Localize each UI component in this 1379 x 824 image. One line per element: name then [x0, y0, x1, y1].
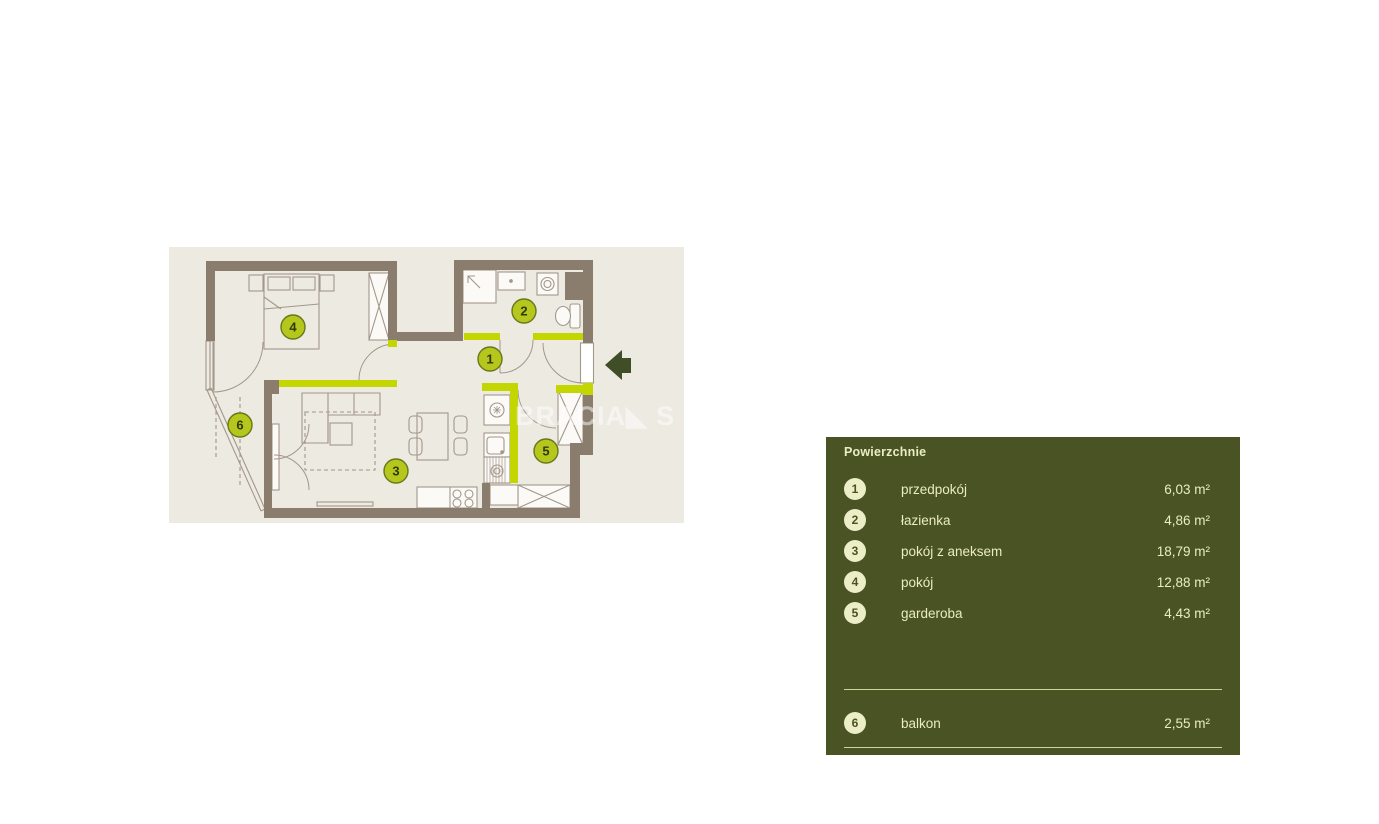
legend-room-number: 3 — [844, 540, 866, 562]
legend-room-label: pokój — [901, 575, 933, 590]
room-marker-1: 1 — [478, 347, 502, 371]
watermark: BRACIA◣ S — [515, 401, 675, 431]
legend-room-area: 18,79 m² — [1157, 544, 1210, 559]
shower — [463, 270, 496, 303]
legend-room-area: 2,55 m² — [1164, 716, 1210, 731]
legend-row-przedpokoj: 1 przedpokój 6,03 m² — [844, 477, 1210, 501]
legend-row-lazienka: 2 łazienka 4,86 m² — [844, 508, 1210, 532]
legend-row-pokoj: 4 pokój 12,88 m² — [844, 570, 1210, 594]
wardrobe — [369, 273, 389, 340]
legend-room-label: łazienka — [901, 513, 951, 528]
room-marker-6: 6 — [228, 413, 252, 437]
wardrobe — [518, 485, 570, 508]
svg-text:5: 5 — [542, 444, 549, 459]
svg-text:6: 6 — [236, 418, 243, 433]
legend-room-number: 2 — [844, 509, 866, 531]
legend-room-number: 6 — [844, 712, 866, 734]
balcony-door-leaf — [272, 424, 279, 490]
legend-room-label: przedpokój — [901, 482, 967, 497]
legend-divider — [844, 689, 1222, 690]
legend-panel: Powierzchnie 1 przedpokój 6,03 m² 2 łazi… — [826, 437, 1240, 755]
legend-row-garderoba: 5 garderoba 4,43 m² — [844, 601, 1210, 625]
svg-text:3: 3 — [392, 464, 399, 479]
legend-title: Powierzchnie — [844, 445, 926, 459]
legend-room-number: 4 — [844, 571, 866, 593]
legend-room-number: 5 — [844, 602, 866, 624]
legend-divider — [844, 747, 1222, 748]
room-marker-5: 5 — [534, 439, 558, 463]
legend-room-area: 4,43 m² — [1164, 606, 1210, 621]
legend-room-label: garderoba — [901, 606, 963, 621]
legend-room-area: 6,03 m² — [1164, 482, 1210, 497]
room-marker-2: 2 — [512, 299, 536, 323]
entry-door-leaf — [581, 343, 594, 383]
legend-room-area: 4,86 m² — [1164, 513, 1210, 528]
room-marker-3: 3 — [384, 459, 408, 483]
room-marker-4: 4 — [281, 315, 305, 339]
floor-plan-svg: BRACIA◣ S 1 2 3 4 — [169, 247, 684, 523]
plan-floor — [169, 247, 684, 523]
legend-room-label: balkon — [901, 716, 941, 731]
bathroom-sink — [498, 272, 525, 290]
legend-row-balkon: 6 balkon 2,55 m² — [844, 711, 1210, 735]
washing-machine — [537, 273, 558, 295]
svg-text:1: 1 — [486, 352, 493, 367]
svg-text:2: 2 — [520, 304, 527, 319]
floor-plan: BRACIA◣ S 1 2 3 4 — [169, 247, 684, 523]
legend-room-number: 1 — [844, 478, 866, 500]
svg-text:4: 4 — [289, 320, 297, 335]
legend-room-label: pokój z aneksem — [901, 544, 1002, 559]
legend-row-pokoj-z-aneksem: 3 pokój z aneksem 18,79 m² — [844, 539, 1210, 563]
page: BRACIA◣ S 1 2 3 4 — [0, 0, 1379, 824]
kitchen-counter — [417, 487, 477, 508]
legend-room-area: 12,88 m² — [1157, 575, 1210, 590]
